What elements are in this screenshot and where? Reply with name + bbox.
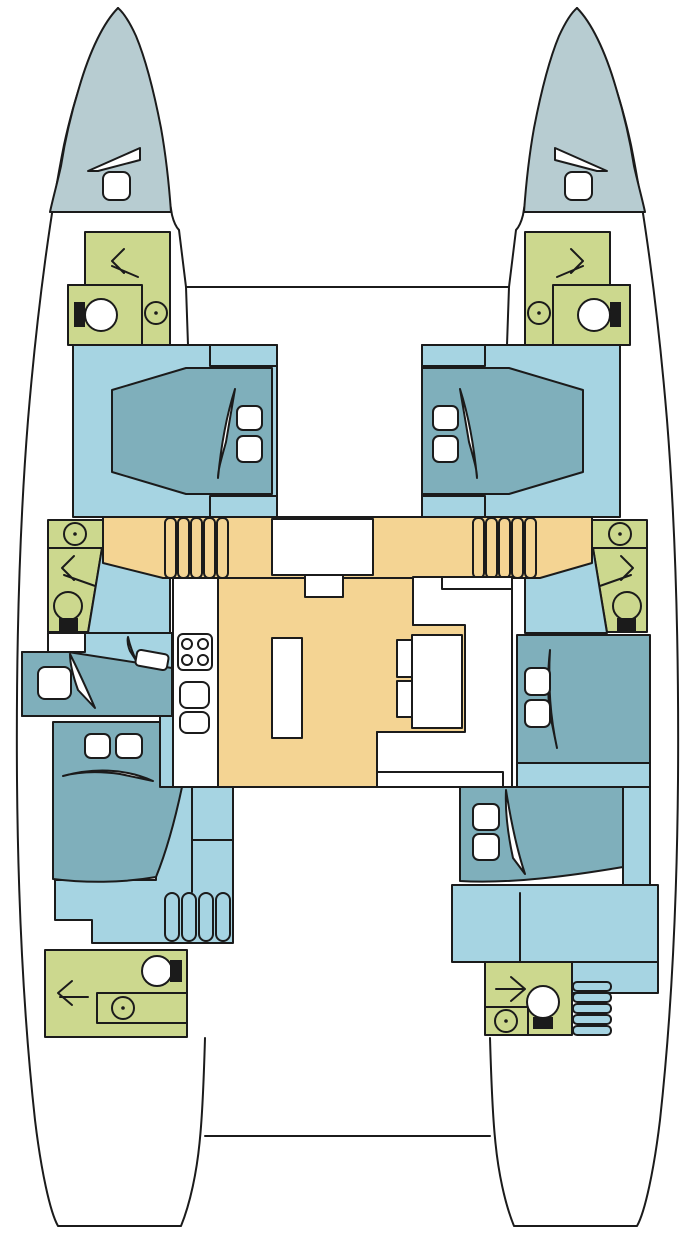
toilet-tank-icon: [533, 1017, 553, 1029]
pillow: [525, 668, 550, 695]
toilet-tank-icon: [610, 302, 621, 327]
stair-step: [573, 1004, 611, 1013]
cabinet: [48, 633, 85, 652]
pillow: [237, 436, 262, 462]
stair-step: [499, 518, 510, 578]
stair-step: [191, 518, 202, 578]
stair-step: [199, 893, 213, 941]
toilet-tank-icon: [170, 960, 182, 982]
starboard-companionway-stairs: [473, 518, 536, 578]
sink-drain-dot: [154, 311, 158, 315]
stair-step: [473, 518, 484, 578]
catamaran-deck-plan: [0, 0, 695, 1239]
toilet-tank-icon: [59, 618, 78, 632]
stair-step: [525, 518, 536, 578]
starboard-mid-cabin: [517, 635, 650, 787]
stair-step: [204, 518, 215, 578]
toilet-icon: [578, 299, 610, 331]
dinette-table: [412, 635, 462, 728]
stair-step: [182, 893, 196, 941]
stair-step: [216, 893, 230, 941]
port-mid-cabin: [22, 633, 172, 716]
deck-hatch-icon: [565, 172, 592, 200]
port-forward-cabin: [73, 345, 277, 517]
stair-step: [512, 518, 523, 578]
starboard-forward-cabin: [422, 345, 620, 517]
boat-plan-page: [0, 0, 695, 1239]
galley-sink: [180, 712, 209, 733]
dinette-seat: [397, 640, 412, 677]
sink-drain-dot: [121, 1006, 125, 1010]
island-counter: [272, 638, 302, 738]
port-forward-head: [68, 232, 170, 345]
port-aft-head: [45, 950, 187, 1037]
pillow: [433, 436, 458, 462]
port-bow-locker: [50, 8, 171, 212]
sink-drain-dot: [537, 311, 541, 315]
deck-hatch-icon: [103, 172, 130, 200]
stair-step: [573, 993, 611, 1002]
starboard-aft-head: [485, 962, 572, 1035]
stove-top: [178, 634, 212, 670]
nav-seat: [305, 575, 343, 597]
toilet-icon: [527, 986, 559, 1018]
sink-drain-dot: [504, 1019, 508, 1023]
port-companionway-stairs: [165, 518, 228, 578]
nav-station-desk: [272, 519, 373, 575]
room-floor: [452, 885, 658, 962]
stair-step: [573, 982, 611, 991]
walkway-strip: [623, 787, 650, 890]
stair-step: [165, 893, 179, 941]
room-floor: [68, 232, 170, 345]
stair-step: [217, 518, 228, 578]
stair-step: [486, 518, 497, 578]
pillow: [525, 700, 550, 727]
pillow: [237, 406, 262, 430]
sink-drain-dot: [618, 532, 622, 536]
pillow: [473, 834, 499, 860]
galley-sink: [180, 682, 209, 708]
pillow: [85, 734, 110, 758]
starboard-bow-locker: [524, 8, 645, 212]
toilet-icon: [142, 956, 172, 986]
toilet-icon: [85, 299, 117, 331]
toilet-tank-icon: [74, 302, 85, 327]
pillow: [116, 734, 142, 758]
pillow: [433, 406, 458, 430]
walkway: [517, 763, 650, 787]
starboard-forward-head: [525, 232, 630, 345]
room-floor: [525, 232, 630, 345]
stove-icon: [178, 634, 212, 670]
starboard-aft-stairs: [573, 982, 611, 1035]
pillow: [38, 667, 71, 699]
stair-step: [178, 518, 189, 578]
stair-step: [573, 1015, 611, 1024]
pillow: [473, 804, 499, 830]
sink-drain-dot: [73, 532, 77, 536]
stair-step: [573, 1026, 611, 1035]
stair-step: [165, 518, 176, 578]
dinette-seat: [397, 681, 412, 717]
toilet-tank-icon: [617, 618, 636, 632]
